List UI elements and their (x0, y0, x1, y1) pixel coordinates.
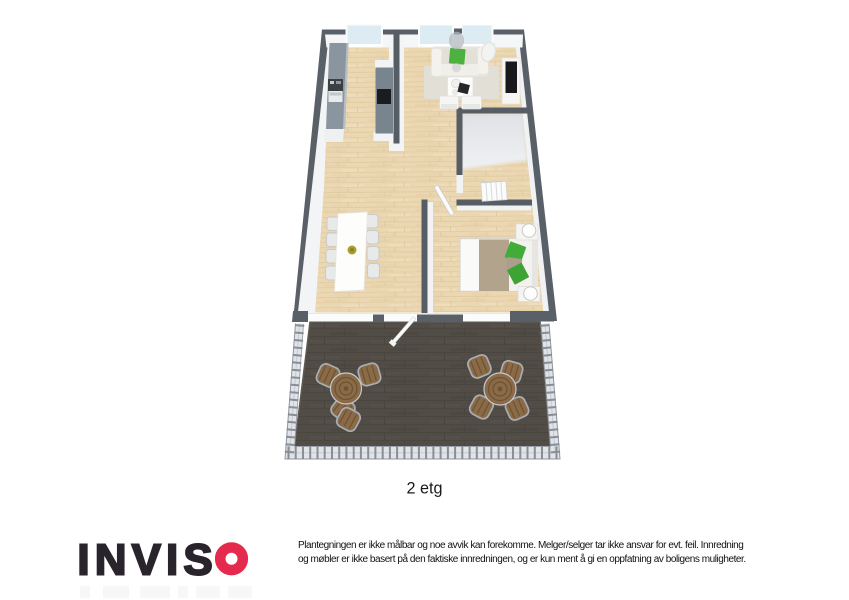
svg-text:INVIS: INVIS (77, 536, 217, 585)
svg-text:2 etg: 2 etg (406, 480, 442, 498)
